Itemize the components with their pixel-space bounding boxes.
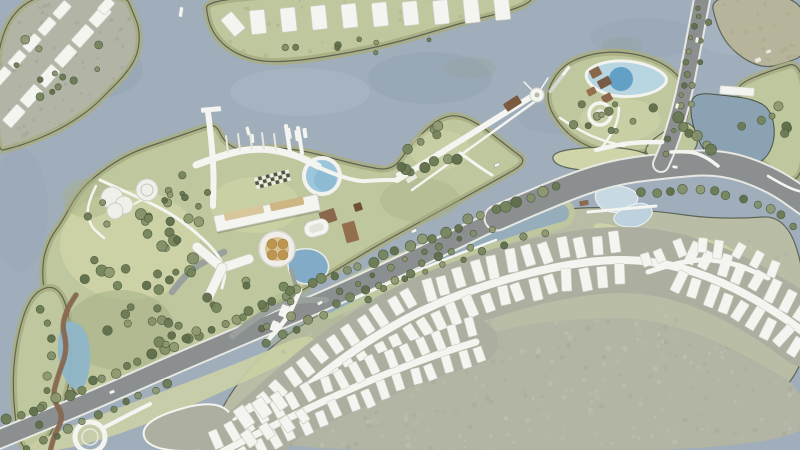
tree — [336, 288, 343, 295]
tree — [679, 93, 684, 98]
texture-dot — [375, 410, 379, 414]
tree — [612, 102, 617, 107]
texture-dot — [664, 366, 667, 369]
tree — [192, 327, 201, 336]
tree — [243, 282, 250, 289]
texture-dot — [18, 127, 21, 130]
texture-dot — [110, 18, 114, 22]
tree — [710, 186, 719, 195]
texture-dot — [707, 371, 710, 374]
clover-c — [267, 250, 277, 260]
tree — [478, 247, 486, 255]
texture-dot — [622, 384, 626, 388]
house — [614, 264, 625, 285]
texture-dot — [602, 355, 606, 359]
tree — [433, 121, 443, 131]
tree — [361, 285, 370, 294]
texture-dot — [411, 446, 415, 450]
texture-dot — [659, 432, 661, 434]
texture-dot — [792, 390, 796, 394]
tree — [692, 130, 703, 141]
villa — [371, 2, 388, 27]
car-1 — [672, 165, 678, 169]
texture-dot — [592, 324, 594, 326]
tree — [683, 59, 689, 65]
tree — [649, 104, 658, 113]
tree — [443, 155, 452, 164]
tree — [461, 257, 467, 263]
tree — [441, 227, 452, 238]
texture-dot — [582, 378, 586, 382]
texture-dot — [585, 358, 590, 363]
tree — [769, 113, 775, 119]
tree — [636, 188, 645, 197]
texture-dot — [466, 370, 468, 372]
texture-dot — [46, 3, 50, 7]
tree — [121, 264, 130, 273]
texture-dot — [550, 359, 554, 363]
tree — [90, 256, 98, 264]
house — [592, 236, 603, 255]
texture-dot — [674, 354, 677, 357]
texture-dot — [682, 354, 687, 359]
tree — [164, 319, 173, 328]
texture-dot — [761, 47, 765, 51]
tree — [705, 19, 712, 26]
texture-dot — [263, 53, 267, 57]
tree — [50, 89, 55, 94]
texture-dot — [331, 429, 335, 433]
texture-dot — [688, 343, 691, 346]
tree — [37, 77, 43, 83]
texture-dot — [723, 3, 726, 6]
texture-dot — [594, 392, 599, 397]
texture-dot — [380, 434, 384, 438]
tree — [316, 273, 326, 283]
tree — [673, 112, 684, 123]
texture-dot — [690, 397, 692, 399]
texture-dot — [767, 58, 770, 61]
texture-dot — [660, 339, 664, 343]
texture-dot — [669, 352, 671, 354]
pier-tip-dot — [535, 93, 540, 98]
texture-dot — [442, 381, 446, 385]
tree — [154, 285, 164, 295]
tree — [36, 305, 44, 313]
texture-dot — [548, 431, 551, 434]
tree — [689, 82, 696, 89]
texture-dot — [464, 446, 467, 449]
texture-dot — [520, 349, 525, 354]
texture-dot — [734, 431, 737, 434]
texture-dot — [489, 434, 493, 438]
tree — [434, 252, 443, 261]
texture-dot — [419, 414, 423, 418]
masterplan-viewport — [0, 0, 800, 450]
texture-dot — [618, 373, 622, 377]
tree — [754, 201, 761, 208]
tree — [681, 83, 687, 89]
tree — [167, 192, 173, 198]
tree — [89, 376, 98, 385]
texture-dot — [20, 86, 22, 88]
texture-dot — [531, 396, 535, 400]
texture-dot — [787, 392, 792, 397]
texture-dot — [343, 1, 345, 3]
texture-dot — [96, 57, 99, 60]
tree — [211, 303, 221, 313]
texture-dot — [634, 322, 639, 327]
water-shade-patch — [444, 57, 496, 79]
tree — [757, 116, 765, 124]
tree — [153, 270, 161, 278]
tree — [391, 276, 399, 284]
texture-dot — [664, 314, 668, 318]
tree — [402, 276, 408, 282]
texture-dot — [544, 411, 547, 414]
tree — [467, 244, 474, 251]
tree — [142, 281, 151, 290]
tree — [599, 112, 605, 118]
texture-dot — [118, 27, 122, 31]
texture-dot — [50, 6, 52, 8]
texture-dot — [300, 6, 303, 9]
tree — [420, 162, 430, 172]
tree — [54, 433, 60, 439]
tree — [489, 226, 495, 232]
water-shade-patch — [230, 68, 370, 116]
texture-dot — [653, 366, 658, 371]
texture-dot — [354, 441, 359, 446]
tree — [418, 260, 425, 267]
texture-dot — [416, 387, 421, 392]
texture-dot — [753, 428, 758, 433]
texture-dot — [657, 380, 662, 385]
texture-dot — [554, 321, 558, 325]
texture-dot — [589, 390, 594, 395]
tree — [439, 261, 445, 267]
texture-dot — [657, 332, 662, 337]
texture-dot — [89, 93, 91, 95]
tree — [390, 247, 399, 256]
tree — [476, 211, 484, 219]
tree — [144, 214, 152, 222]
tree — [332, 300, 340, 308]
texture-dot — [599, 441, 603, 445]
texture-dot — [758, 27, 762, 31]
tree — [154, 305, 161, 312]
texture-dot — [614, 358, 619, 363]
texture-dot — [643, 341, 647, 345]
tree — [124, 320, 131, 327]
car-5 — [695, 37, 699, 43]
tree — [538, 186, 549, 197]
texture-dot — [405, 423, 409, 427]
texture-dot — [363, 416, 367, 420]
texture-dot — [38, 6, 41, 9]
tree — [23, 446, 29, 450]
tree — [320, 311, 328, 319]
tree — [552, 182, 560, 190]
texture-dot — [787, 386, 792, 391]
tree — [293, 44, 299, 50]
texture-dot — [121, 45, 124, 48]
tree — [78, 386, 86, 394]
texture-dot — [740, 53, 743, 56]
dome-b — [136, 179, 158, 201]
tree — [608, 127, 615, 134]
texture-dot — [39, 108, 43, 112]
texture-dot — [120, 66, 123, 69]
texture-dot — [574, 404, 577, 407]
site-plan-canvas — [0, 0, 800, 450]
tree — [511, 197, 522, 208]
texture-dot — [398, 18, 401, 21]
tree — [111, 406, 117, 412]
tree — [208, 326, 215, 333]
texture-dot — [367, 423, 372, 428]
texture-dot — [503, 416, 508, 421]
texture-dot — [405, 443, 410, 448]
texture-dot — [708, 352, 711, 355]
villa — [432, 0, 449, 25]
texture-dot — [525, 418, 530, 423]
tree — [162, 197, 168, 203]
texture-dot — [663, 325, 668, 330]
tree — [181, 194, 188, 201]
texture-dot — [521, 389, 526, 394]
tree — [470, 230, 476, 236]
tree — [55, 84, 61, 90]
texture-dot — [281, 350, 285, 354]
texture-dot — [127, 17, 131, 21]
tree — [406, 270, 415, 279]
texture-dot — [489, 400, 493, 404]
tree — [774, 101, 783, 110]
villa — [280, 7, 297, 32]
tree — [95, 67, 100, 72]
tree — [174, 236, 181, 243]
tree — [777, 211, 785, 219]
tree — [43, 372, 51, 380]
texture-dot — [603, 378, 606, 381]
tree — [187, 269, 195, 277]
texture-dot — [580, 217, 583, 220]
texture-dot — [595, 431, 599, 435]
texture-dot — [787, 12, 791, 16]
texture-dot — [698, 414, 700, 416]
texture-dot — [715, 428, 720, 433]
texture-dot — [320, 442, 325, 447]
tree — [696, 185, 705, 194]
texture-dot — [768, 381, 770, 383]
tree — [187, 253, 198, 264]
tree — [585, 123, 591, 129]
texture-dot — [571, 389, 574, 392]
texture-dot — [42, 4, 47, 9]
texture-dot — [500, 360, 505, 365]
texture-dot — [730, 30, 734, 34]
texture-dot — [760, 417, 764, 421]
texture-dot — [112, 77, 115, 80]
tree — [357, 37, 362, 42]
tree — [104, 267, 114, 277]
texture-dot — [590, 410, 593, 413]
tree — [279, 282, 288, 291]
tree — [578, 101, 585, 108]
texture-dot — [787, 55, 791, 59]
texture-dot — [729, 28, 731, 30]
tree — [331, 272, 339, 280]
texture-dot — [595, 389, 598, 392]
tree — [39, 436, 47, 444]
villa — [249, 9, 266, 34]
tree — [429, 156, 439, 166]
texture-dot — [767, 385, 770, 388]
texture-dot — [538, 340, 540, 342]
texture-dot — [41, 11, 45, 15]
texture-dot — [662, 430, 664, 432]
tree — [403, 144, 413, 154]
tree — [678, 184, 688, 194]
texture-dot — [307, 333, 311, 337]
texture-dot — [599, 404, 604, 409]
texture-dot — [20, 64, 23, 67]
texture-dot — [405, 435, 410, 440]
texture-dot — [784, 421, 788, 425]
tree — [417, 234, 427, 244]
texture-dot — [761, 38, 765, 42]
texture-dot — [628, 394, 632, 398]
texture-dot — [665, 428, 670, 433]
texture-dot — [672, 439, 677, 444]
texture-dot — [564, 429, 567, 432]
texture-dot — [412, 413, 416, 417]
texture-dot — [683, 417, 688, 422]
tree — [463, 214, 473, 224]
texture-dot — [504, 378, 507, 381]
tree — [293, 326, 300, 333]
texture-dot — [403, 413, 408, 418]
tree — [143, 229, 152, 238]
tree — [179, 171, 186, 178]
tree — [427, 38, 431, 42]
texture-dot — [724, 349, 727, 352]
tree — [173, 269, 179, 275]
texture-dot — [409, 393, 414, 398]
texture-dot — [567, 335, 572, 340]
tree — [380, 285, 387, 292]
tree — [666, 187, 674, 195]
tree — [123, 362, 130, 369]
texture-dot — [242, 49, 246, 53]
texture-dot — [55, 107, 57, 109]
texture-dot — [782, 432, 786, 436]
texture-dot — [734, 400, 737, 403]
tree — [428, 234, 437, 243]
texture-dot — [595, 319, 600, 324]
texture-dot — [574, 339, 577, 342]
tree — [696, 14, 701, 19]
tree — [204, 189, 210, 195]
texture-dot — [332, 47, 335, 50]
texture-dot — [698, 428, 701, 431]
texture-dot — [501, 347, 504, 350]
texture-dot — [508, 357, 512, 361]
tree — [345, 293, 354, 302]
tree — [365, 296, 372, 303]
texture-dot — [483, 384, 486, 387]
texture-dot — [535, 354, 540, 359]
texture-dot — [468, 425, 472, 429]
tree — [84, 213, 92, 221]
tree — [135, 392, 142, 399]
texture-dot — [632, 435, 635, 438]
texture-dot — [718, 379, 720, 381]
tree — [672, 128, 677, 133]
texture-dot — [579, 417, 582, 420]
tree — [457, 236, 462, 241]
texture-dot — [548, 381, 553, 386]
tree — [1, 414, 11, 424]
texture-dot — [459, 434, 463, 438]
texture-dot — [541, 395, 544, 398]
tree — [664, 136, 670, 142]
texture-dot — [115, 37, 119, 41]
tree — [148, 317, 156, 325]
texture-dot — [673, 333, 677, 337]
texture-dot — [622, 346, 628, 352]
texture-dot — [664, 340, 669, 345]
texture-dot — [739, 435, 744, 440]
tree — [405, 241, 416, 252]
texture-dot — [674, 317, 679, 322]
tree — [113, 281, 122, 290]
tree — [98, 375, 106, 383]
tree — [263, 323, 270, 330]
texture-dot — [53, 47, 56, 50]
tree — [278, 330, 287, 339]
clover-b — [278, 239, 288, 249]
tree — [688, 101, 694, 107]
tree — [688, 35, 693, 40]
texture-dot — [560, 436, 565, 441]
island-lagoon-deep — [609, 67, 633, 91]
texture-dot — [464, 440, 467, 443]
tree — [604, 107, 613, 116]
tree — [780, 129, 789, 138]
texture-dot — [46, 14, 48, 16]
texture-dot — [21, 133, 26, 138]
texture-dot — [657, 307, 660, 310]
tree — [44, 387, 50, 393]
texture-dot — [35, 60, 39, 64]
tree — [369, 257, 379, 267]
tree — [100, 199, 106, 205]
texture-dot — [62, 98, 65, 101]
texture-dot — [690, 376, 693, 379]
tree — [44, 320, 51, 327]
tree — [738, 122, 746, 130]
texture-dot — [775, 256, 780, 261]
tree — [697, 59, 702, 64]
tree — [63, 424, 72, 433]
tree — [417, 138, 424, 145]
texture-dot — [794, 55, 798, 59]
texture-dot — [485, 396, 490, 401]
tree — [397, 162, 406, 171]
texture-dot — [442, 411, 444, 413]
